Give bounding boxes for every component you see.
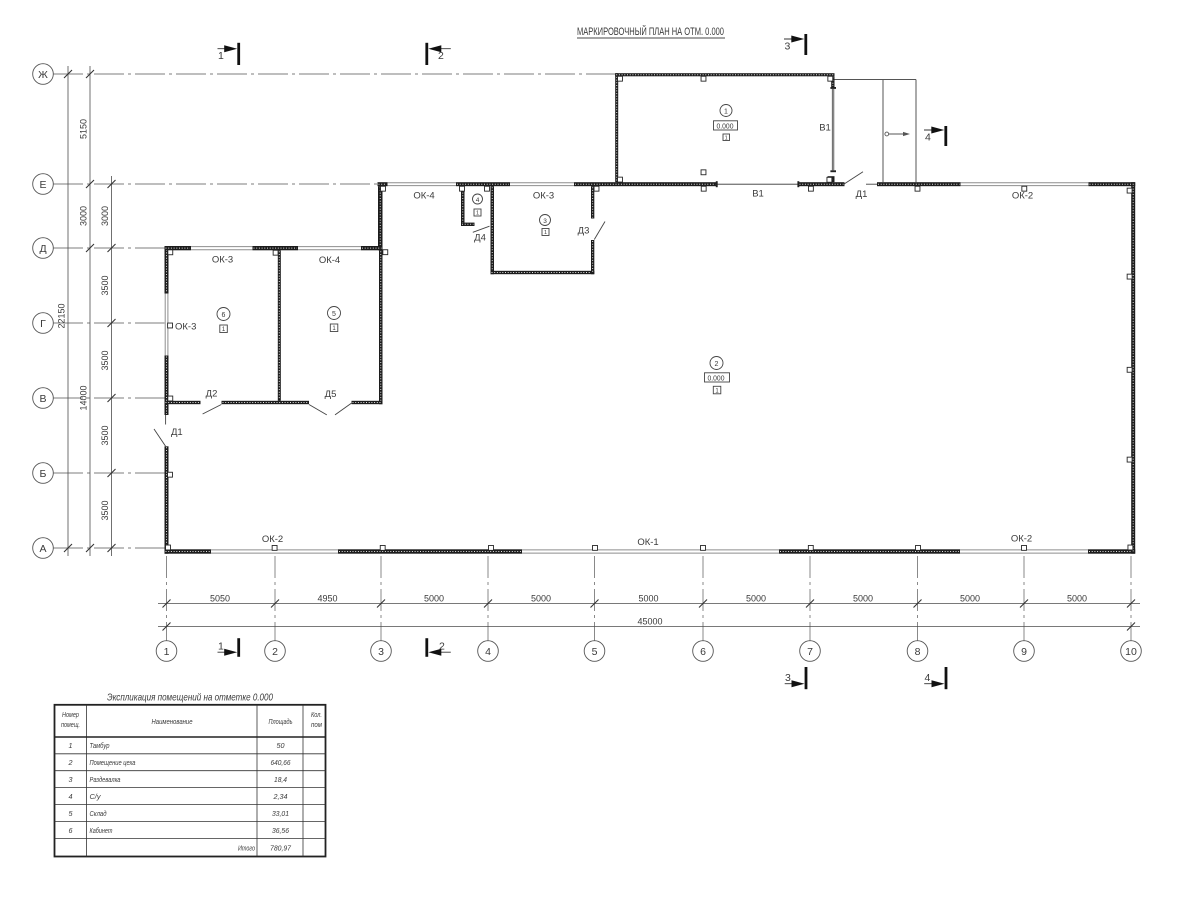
svg-text:Д4: Д4 bbox=[474, 233, 486, 244]
svg-text:3: 3 bbox=[543, 218, 547, 225]
svg-text:Наименование: Наименование bbox=[152, 717, 193, 726]
svg-text:ОК-3: ОК-3 bbox=[175, 322, 196, 333]
svg-text:1: 1 bbox=[476, 211, 479, 217]
svg-text:5150: 5150 bbox=[79, 119, 89, 139]
svg-text:10: 10 bbox=[1125, 646, 1137, 658]
svg-text:2: 2 bbox=[68, 758, 73, 767]
svg-text:780,97: 780,97 bbox=[270, 844, 292, 853]
svg-text:пом: пом bbox=[311, 720, 322, 729]
svg-text:22150: 22150 bbox=[57, 303, 67, 328]
svg-text:Д5: Д5 bbox=[325, 389, 337, 400]
svg-text:0.000: 0.000 bbox=[717, 121, 734, 130]
svg-text:3500: 3500 bbox=[100, 350, 110, 370]
svg-text:1: 1 bbox=[544, 230, 547, 236]
svg-text:3: 3 bbox=[378, 646, 384, 658]
svg-text:Склад: Склад bbox=[90, 809, 107, 818]
svg-text:Ж: Ж bbox=[38, 69, 48, 81]
svg-text:5: 5 bbox=[332, 311, 336, 318]
svg-text:3500: 3500 bbox=[100, 500, 110, 520]
svg-text:4: 4 bbox=[69, 792, 73, 801]
svg-text:Раздевалка: Раздевалка bbox=[90, 775, 121, 784]
svg-text:7: 7 bbox=[807, 646, 813, 658]
svg-text:В1: В1 bbox=[819, 122, 831, 133]
svg-text:помещ.: помещ. bbox=[61, 720, 80, 729]
svg-text:36,56: 36,56 bbox=[272, 826, 289, 835]
svg-text:3000: 3000 bbox=[100, 206, 110, 226]
svg-text:5000: 5000 bbox=[1067, 594, 1087, 604]
svg-text:Д1: Д1 bbox=[856, 189, 868, 200]
svg-text:4: 4 bbox=[925, 672, 931, 684]
svg-text:Кабинет: Кабинет bbox=[90, 826, 113, 835]
svg-text:Б: Б bbox=[40, 468, 47, 480]
svg-text:6: 6 bbox=[222, 312, 226, 319]
svg-text:1: 1 bbox=[725, 135, 728, 141]
svg-text:2: 2 bbox=[272, 646, 278, 658]
svg-text:В1: В1 bbox=[752, 188, 764, 199]
svg-text:1: 1 bbox=[69, 741, 73, 750]
svg-text:18,4: 18,4 bbox=[274, 775, 287, 784]
svg-text:Д1: Д1 bbox=[171, 427, 183, 438]
svg-text:Д2: Д2 bbox=[206, 389, 218, 400]
svg-text:1: 1 bbox=[724, 109, 728, 116]
svg-text:4: 4 bbox=[925, 132, 931, 144]
svg-text:1: 1 bbox=[218, 50, 224, 62]
svg-text:ОК-4: ОК-4 bbox=[413, 190, 434, 201]
svg-text:В: В bbox=[39, 393, 46, 405]
svg-text:ОК-4: ОК-4 bbox=[319, 255, 340, 266]
svg-text:Д: Д bbox=[39, 243, 46, 255]
svg-text:640,66: 640,66 bbox=[271, 758, 291, 767]
svg-text:8: 8 bbox=[915, 646, 921, 658]
svg-text:3: 3 bbox=[69, 775, 73, 784]
svg-text:3500: 3500 bbox=[100, 425, 110, 445]
svg-text:1: 1 bbox=[164, 646, 170, 658]
svg-text:6: 6 bbox=[700, 646, 706, 658]
svg-text:4: 4 bbox=[476, 197, 480, 204]
svg-text:МАРКИРОВОЧНЫЙ ПЛАН НА ОТМ. 0.0: МАРКИРОВОЧНЫЙ ПЛАН НА ОТМ. 0.000 bbox=[577, 25, 724, 38]
svg-text:4950: 4950 bbox=[317, 594, 337, 604]
svg-text:14000: 14000 bbox=[79, 385, 89, 410]
svg-text:5000: 5000 bbox=[746, 594, 766, 604]
svg-text:Номер: Номер bbox=[62, 710, 79, 719]
svg-text:50: 50 bbox=[277, 741, 285, 750]
svg-text:ОК-2: ОК-2 bbox=[262, 534, 283, 545]
svg-text:5: 5 bbox=[592, 646, 598, 658]
svg-text:45000: 45000 bbox=[637, 617, 662, 627]
svg-text:Итого: Итого bbox=[238, 844, 255, 853]
svg-text:5000: 5000 bbox=[960, 594, 980, 604]
svg-text:Тамбур: Тамбур bbox=[90, 741, 110, 750]
svg-text:Помещение цеха: Помещение цеха bbox=[90, 758, 136, 767]
svg-text:ОК-2: ОК-2 bbox=[1011, 534, 1032, 545]
svg-text:5050: 5050 bbox=[210, 594, 230, 604]
svg-text:Е: Е bbox=[39, 179, 46, 191]
svg-text:9: 9 bbox=[1021, 646, 1027, 658]
svg-text:5000: 5000 bbox=[424, 594, 444, 604]
svg-text:ОК-1: ОК-1 bbox=[637, 537, 658, 548]
svg-text:5000: 5000 bbox=[638, 594, 658, 604]
svg-text:3: 3 bbox=[785, 672, 791, 684]
svg-text:3500: 3500 bbox=[100, 275, 110, 295]
svg-text:Экспликация помещений на отмет: Экспликация помещений на отметке 0.000 bbox=[107, 692, 273, 704]
svg-text:6: 6 bbox=[69, 826, 73, 835]
svg-text:33,01: 33,01 bbox=[272, 809, 289, 818]
svg-text:5000: 5000 bbox=[531, 594, 551, 604]
svg-text:2: 2 bbox=[715, 361, 719, 368]
svg-text:С/у: С/у bbox=[90, 792, 101, 801]
svg-text:Д3: Д3 bbox=[578, 226, 590, 237]
svg-text:А: А bbox=[39, 543, 46, 555]
svg-text:0.000: 0.000 bbox=[708, 373, 725, 382]
svg-text:Площадь: Площадь bbox=[269, 717, 293, 726]
svg-text:2,34: 2,34 bbox=[273, 792, 288, 801]
svg-text:4: 4 bbox=[485, 646, 491, 658]
svg-text:ОК-3: ОК-3 bbox=[212, 254, 233, 265]
svg-text:Г: Г bbox=[40, 318, 46, 330]
svg-text:3000: 3000 bbox=[79, 206, 89, 226]
svg-text:ОК-3: ОК-3 bbox=[533, 190, 554, 201]
svg-text:5000: 5000 bbox=[853, 594, 873, 604]
svg-text:1: 1 bbox=[218, 641, 224, 653]
svg-text:ОК-2: ОК-2 bbox=[1012, 190, 1033, 201]
svg-text:3: 3 bbox=[785, 41, 791, 53]
svg-text:Кол.: Кол. bbox=[311, 710, 322, 719]
